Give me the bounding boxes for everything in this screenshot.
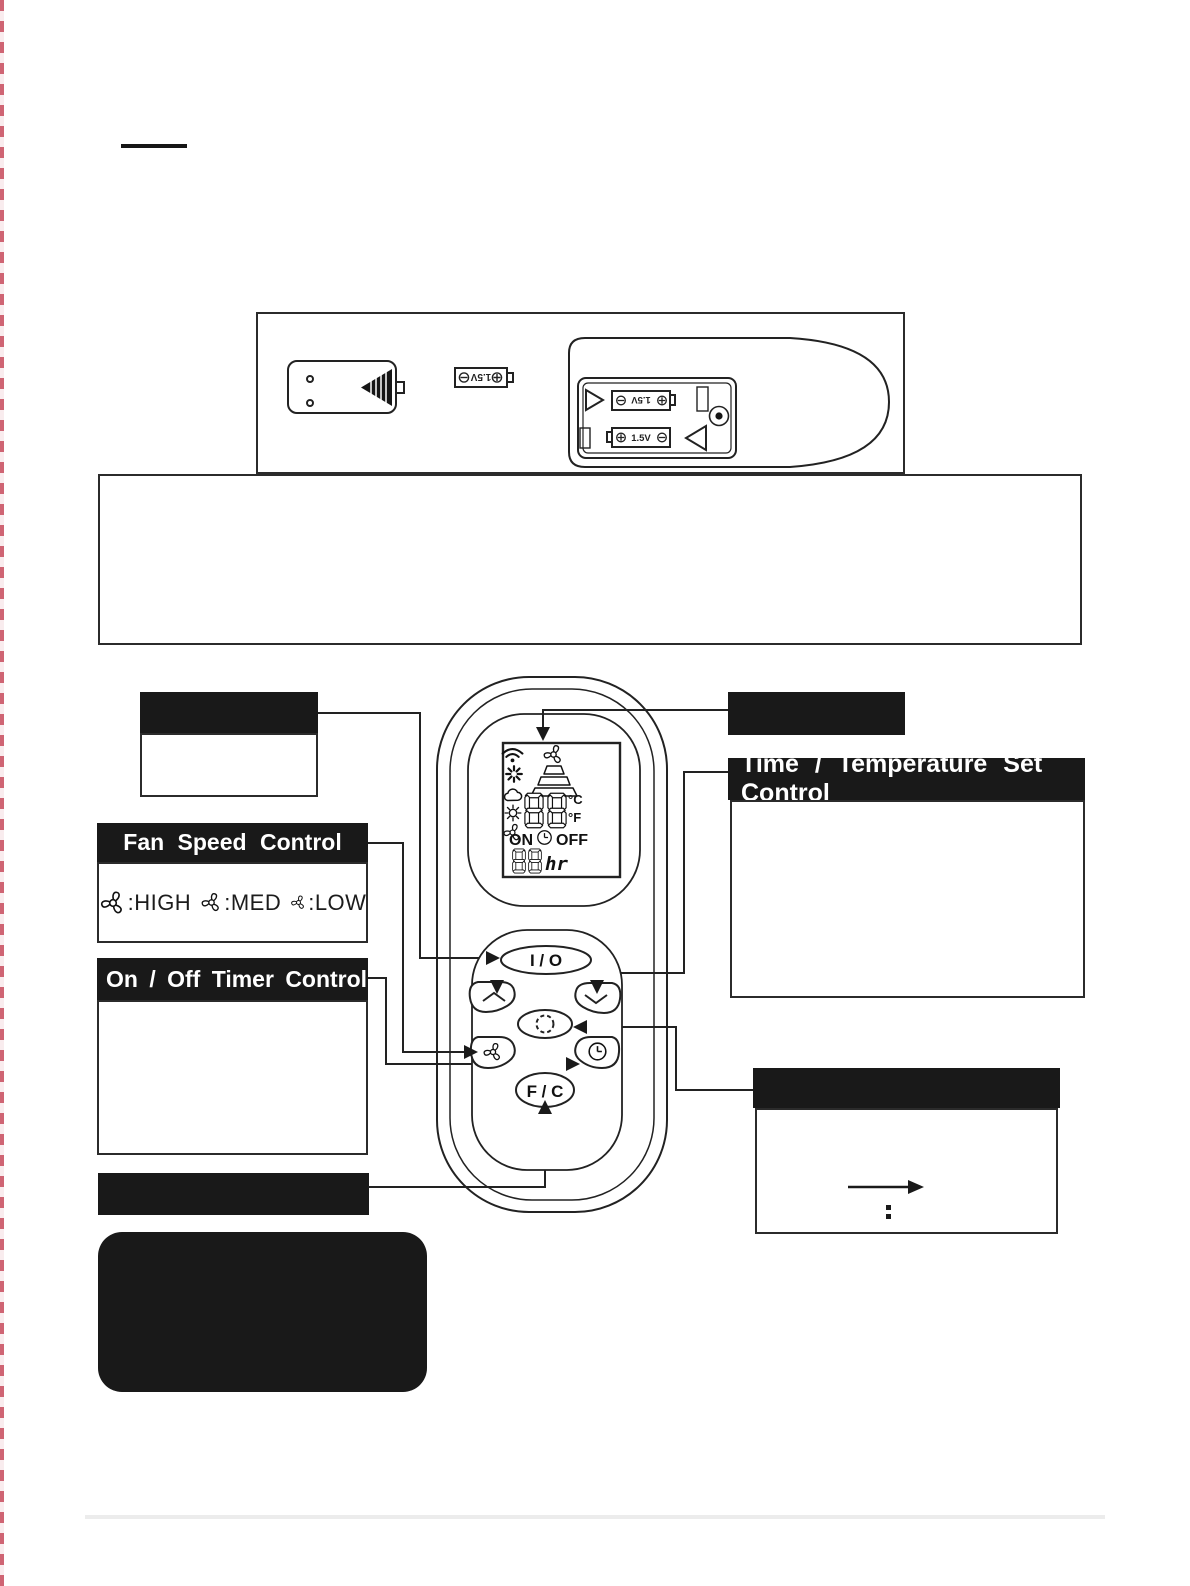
heat-burst-icon [506,766,522,782]
chevron-up-icon [483,993,505,1001]
hour-digit [529,849,542,873]
mode-callout-body [755,1108,1058,1234]
footer-rule [85,1515,1105,1519]
wifi-icon [503,749,523,762]
fan-icon [503,824,519,840]
page-edge-dashes [0,0,4,1586]
remote-outline [437,677,667,1212]
mode-button [518,1010,572,1038]
timer-callout-header: On / Off Timer Control [97,958,368,1000]
fan-icon [543,746,561,763]
arrow-left-icon [573,1020,587,1034]
mode-circle-icon [537,1016,554,1033]
arrow-right-icon [464,1045,478,1059]
fc-button [516,1073,574,1107]
arrow-right-icon [566,1057,580,1071]
fan-icon [200,891,223,914]
remote-front-figure: °C °F ON OFF hr [437,677,667,1212]
temp-digit [525,793,543,828]
fan-level-med-label: :MED [224,890,281,916]
fan-speed-title: Fan Speed Control [123,829,341,856]
connector-timer [368,978,566,1064]
connector-arrowheads [464,727,604,1114]
display-callout-black-box [140,692,318,734]
cloud-icon [505,789,522,800]
time-temp-callout-header: Time / Temperature Set Control [728,758,1085,800]
hour-unit-label: hr [545,853,568,875]
timer-title: On / Off Timer Control [106,966,367,993]
hour-digit [513,849,526,873]
timer-button [575,1037,619,1068]
power-button-label: I / O [530,951,562,970]
clock-icon [538,831,551,844]
timer-off-label: OFF [556,832,588,849]
manual-page: Time / Temperature Set Control Fan Speed… [0,0,1190,1586]
arrow-up-icon [538,1100,552,1114]
arrow-down-icon [536,727,550,741]
down-button [575,983,620,1013]
connector-updown [497,772,728,981]
note-black-panel [98,1232,427,1392]
lcd-pointer-black-box [728,692,905,735]
fan-level-med: :MED [200,890,281,916]
connector-fan [368,843,464,1052]
arrow-down-icon [490,980,504,994]
fan-level-low: :LOW [290,890,366,916]
fan-speed-legend: :HIGH :MED :LOW [97,862,368,943]
fan-icon [99,889,127,917]
timer-callout-body [97,1000,368,1155]
up-button [470,982,515,1012]
connector-display [543,710,728,729]
flame-cone-icon [531,766,577,796]
fan-speed-callout-header: Fan Speed Control [97,823,368,862]
display-callout-body [140,733,318,797]
fc-callout-black-bar [98,1173,369,1215]
remote-buttons: I / O F / C [470,930,622,1170]
fc-button-label: F / C [527,1082,564,1101]
fan-level-high: :HIGH [99,889,192,917]
power-button [501,946,591,974]
time-temp-callout-body [730,800,1085,998]
connector-fc [368,1113,545,1187]
remote-inner-outline [450,689,654,1200]
connector-mode [587,1027,753,1090]
timer-on-label: ON [509,832,533,849]
fahrenheit-label: °F [568,810,581,825]
fan-button [471,1037,515,1068]
button-panel [472,930,622,1170]
arrow-down-icon [590,980,604,994]
lcd-content: °C °F ON OFF hr [503,746,589,875]
fan-level-high-label: :HIGH [128,890,192,916]
battery-diagram-box [256,312,905,474]
sun-icon [505,805,521,821]
mode-callout-header [753,1068,1060,1108]
fan-level-low-label: :LOW [308,890,366,916]
page-top-rule [121,144,187,148]
display-bezel [468,714,640,906]
clock-icon [589,1043,606,1060]
temp-digit [548,793,566,828]
fan-icon [290,894,307,911]
arrow-right-icon [486,951,500,965]
lcd-display [503,743,620,877]
callout-connectors [318,710,753,1187]
celsius-label: °C [568,792,583,807]
chevron-down-icon [585,995,607,1003]
fan-icon [483,1044,500,1061]
instruction-text-box [98,474,1082,645]
